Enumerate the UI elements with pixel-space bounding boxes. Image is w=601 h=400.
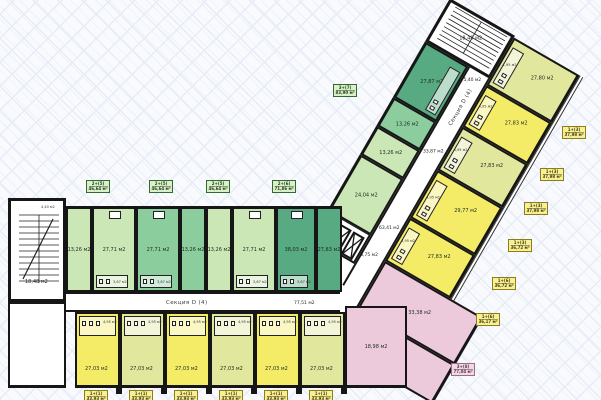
apartment-room-green[interactable]: 13,26 м2 <box>180 206 206 292</box>
porch-stub <box>251 386 257 394</box>
bath-fixture-icon <box>477 114 483 120</box>
room-area-label: 27,03 м2 <box>175 366 198 372</box>
apartment-tag-yellow[interactable]: 1+(1)33,93 м² <box>264 390 288 400</box>
corridor-area-label: 33,87 м2 <box>423 150 444 155</box>
apartment-studio[interactable]: 4,95 м227,03 м2 <box>165 312 210 388</box>
apartment-total-area-label: 37,98 м² <box>527 209 546 214</box>
bath-fixture-icon <box>89 321 93 326</box>
bath-fixture-icon <box>224 321 228 326</box>
bath-area-label: 4,95 м2 <box>283 320 297 324</box>
bath-area-label: 4,95 м2 <box>193 320 207 324</box>
apartment-tag-yellow[interactable]: 1+(3)37,98 м² <box>562 126 586 139</box>
room-area-label: 27,03 м2 <box>265 366 288 372</box>
apartment-tag-yellow[interactable]: 1+(1)33,93 м² <box>129 390 153 400</box>
bath-area-label: 4,95 м2 <box>454 148 468 152</box>
apartment-tag-green[interactable]: 3+(7)83,90 м² <box>333 84 357 97</box>
bathroom[interactable]: 3,67 м2 <box>236 275 268 288</box>
room-area-label: 27,03 м2 <box>130 366 153 372</box>
section-label: Секция D (4) <box>166 300 208 306</box>
room-area-label: 27,03 м2 <box>220 366 243 372</box>
apartment-tag-yellow[interactable]: 1+(3)36,72 м² <box>508 239 532 252</box>
bath-fixture-icon <box>239 279 243 284</box>
bath-fixture-icon <box>433 99 439 105</box>
bath-area-label: 4,95 м2 <box>426 196 440 200</box>
left-staircase[interactable]: 18,48 м2 4,40 м2 <box>8 198 66 302</box>
bath-fixture-icon <box>186 321 190 326</box>
closet-area-label: 4,40 м2 <box>41 205 55 209</box>
room-area-label: 27,71 м2 <box>243 247 266 253</box>
bath-fixture-icon <box>399 248 405 254</box>
bath-area-label: 1,95 м2 <box>503 63 517 67</box>
apartment-room-green[interactable]: 27,71 м23,67 м2 <box>232 206 276 292</box>
room-area-label: 24,04 м2 <box>354 192 377 198</box>
room-area-label: 27,83 м2 <box>318 247 341 253</box>
bathroom[interactable]: 4,95 м2 <box>124 316 161 336</box>
entry-area-label: 5,40 м2 <box>463 78 481 83</box>
room-area-label: 27,83 м2 <box>428 254 451 260</box>
bath-fixture-icon <box>143 279 147 284</box>
apartment-total-area-label: 37,98 м² <box>565 133 584 138</box>
bath-fixture-icon <box>473 120 479 126</box>
apartment-tag-green[interactable]: 2+(5)46,64 м² <box>149 180 173 193</box>
stair-treads-icon <box>17 213 61 285</box>
room-area-label: 13,26 м2 <box>68 247 91 253</box>
bath-fixture-icon <box>179 321 183 326</box>
room-area-label: 27,03 м2 <box>310 366 333 372</box>
bath-fixture-icon <box>283 279 287 284</box>
bathroom[interactable]: 3,67 м2 <box>140 275 172 288</box>
apartment-studio[interactable]: 4,95 м227,03 м2 <box>120 312 165 388</box>
bath-fixture-icon <box>172 321 176 326</box>
bath-area-label: 3,67 м2 <box>157 280 171 284</box>
apartment-tag-green[interactable]: 2+(6)71,86 м² <box>272 180 296 193</box>
room-area-label: 13,26 м2 <box>182 247 205 253</box>
bath-fixture-icon <box>314 321 318 326</box>
apartment-tag-yellow[interactable]: 1+(1)33,93 м² <box>219 390 243 400</box>
bath-area-label: 4,95 м2 <box>148 320 162 324</box>
entry-hall <box>8 302 66 388</box>
bath-fixture-icon <box>106 279 110 284</box>
apartment-total-area-label: 37,98 м² <box>543 175 562 180</box>
apartment-tag-yellow[interactable]: 1+(6)36,72 м² <box>492 277 516 290</box>
corridor-area-label: 63,41 м2 <box>379 226 400 231</box>
bath-fixture-icon <box>99 279 103 284</box>
room-area-label: 27,83 м2 <box>480 163 503 169</box>
bath-fixture-icon <box>150 279 154 284</box>
room-area-label: 27,80 м2 <box>530 76 553 82</box>
apartment-tag-yellow[interactable]: 1+(3)37,98 м² <box>524 202 548 215</box>
room-area-label: 27,03 м2 <box>85 366 108 372</box>
apartment-tag-pink[interactable]: 3+(8)77,04 м² <box>451 363 475 376</box>
bathroom[interactable]: 3,67 м2 <box>96 275 128 288</box>
apartment-room-pink[interactable]: 18,98 м2 <box>345 306 407 388</box>
bathroom[interactable]: 4,95 м2 <box>214 316 251 336</box>
apartment-total-area-label: 71,86 м² <box>275 187 294 192</box>
apartment-studio[interactable]: 4,95 м227,03 м2 <box>255 312 300 388</box>
apartment-room-green[interactable]: 27,83 м2 <box>316 206 342 292</box>
bath-area-label: 3,67 м2 <box>113 280 127 284</box>
apartment-total-area-label: 36,72 м² <box>511 246 530 251</box>
bath-area-label: 3,67 м2 <box>297 280 311 284</box>
bath-fixture-icon <box>290 279 294 284</box>
bath-fixture-icon <box>217 321 221 326</box>
hall-area-label: 8,75 м2 <box>360 253 378 258</box>
left-corridor[interactable]: Секция D (4) 77,51 м2 <box>66 292 340 312</box>
bath-fixture-icon <box>134 321 138 326</box>
bath-area-label: 4,95 м2 <box>328 320 342 324</box>
bath-fixture-icon <box>396 255 402 261</box>
apartment-room-green[interactable]: 27,71 м23,67 м2 <box>92 206 136 292</box>
apartment-total-area-label: 46,64 м² <box>89 187 108 192</box>
bath-area-label: 4,95 м2 <box>401 239 415 243</box>
porch-stub <box>341 386 347 394</box>
apartment-total-area-label: 36,72 м² <box>495 284 514 289</box>
apartment-total-area-label: 77,04 м² <box>454 370 473 375</box>
apartment-total-area-label: 46,64 м² <box>209 187 228 192</box>
closet-box <box>291 211 303 219</box>
bath-fixture-icon <box>429 105 435 111</box>
apartment-total-area-label: 46,64 м² <box>152 187 171 192</box>
apartment-tag-yellow[interactable]: 1+(1)33,93 м² <box>174 390 198 400</box>
bath-fixture-icon <box>96 321 100 326</box>
apartment-room-green[interactable]: 38,03 м23,67 м2 <box>276 206 316 292</box>
bath-fixture-icon <box>421 211 427 217</box>
bath-fixture-icon <box>231 321 235 326</box>
apartment-room-green[interactable]: 27,71 м23,67 м2 <box>136 206 180 292</box>
room-area-label: 13,26 м2 <box>395 121 418 127</box>
porch-stub <box>161 386 167 394</box>
bath-fixture-icon <box>424 205 430 211</box>
bath-fixture-icon <box>269 321 273 326</box>
bath-fixture-icon <box>262 321 266 326</box>
bath-area-label: 4,95 м2 <box>238 320 252 324</box>
bath-fixture-icon <box>452 158 458 164</box>
bathroom[interactable]: 4,95 м2 <box>169 316 206 336</box>
closet-box <box>109 211 121 219</box>
bath-fixture-icon <box>127 321 131 326</box>
room-area-label: 27,71 м2 <box>103 247 126 253</box>
room-area-label: 13,26 м2 <box>208 247 231 253</box>
bathroom[interactable]: 4,95 м2 <box>79 316 116 336</box>
bathroom[interactable]: 4,95 м2 <box>259 316 296 336</box>
room-area-label: 38,03 м2 <box>285 247 308 253</box>
room-area-label: 33,38 м2 <box>408 310 431 316</box>
room-area-label: 27,83 м2 <box>505 121 528 127</box>
apartment-tag-green[interactable]: 2+(5)46,64 м² <box>206 180 230 193</box>
bath-fixture-icon <box>82 321 86 326</box>
closet-box <box>153 211 165 219</box>
apartment-tag-yellow[interactable]: 1+(3)37,98 м² <box>540 168 564 181</box>
bathroom[interactable]: 4,95 м2 <box>304 316 341 336</box>
apartment-tag-yellow[interactable]: 1+(1)33,93 м² <box>309 390 333 400</box>
bathroom[interactable]: 3,67 м2 <box>280 275 308 288</box>
apartment-studio[interactable]: 4,95 м227,03 м2 <box>75 312 120 388</box>
floorplan-canvas: 63,41 м2 33,87 м2 Секция D (4) 8,75 м2 1… <box>0 0 601 400</box>
apartment-tag-yellow[interactable]: 1+(6)36,17 м² <box>476 313 500 326</box>
bath-fixture-icon <box>501 73 507 79</box>
room-area-label: 27,71 м2 <box>147 247 170 253</box>
apartment-studio[interactable]: 4,95 м227,03 м2 <box>300 312 345 388</box>
bath-fixture-icon <box>497 79 503 85</box>
apartment-total-area-label: 83,90 м² <box>336 91 355 96</box>
apartment-tag-green[interactable]: 2+(5)46,64 м² <box>86 180 110 193</box>
apartment-tag-yellow[interactable]: 1+(1)33,93 м² <box>84 390 108 400</box>
apartment-total-area-label: 36,17 м² <box>479 320 498 325</box>
bath-fixture-icon <box>141 321 145 326</box>
bath-fixture-icon <box>321 321 325 326</box>
closet-box <box>249 211 261 219</box>
bath-fixture-icon <box>276 321 280 326</box>
porch-stub <box>296 386 302 394</box>
bath-area-label: 4,95 м2 <box>479 105 493 109</box>
apartment-room-green[interactable]: 13,26 м2 <box>66 206 92 292</box>
room-area-label: 13,26 м2 <box>379 150 402 156</box>
bath-area-label: 3,67 м2 <box>253 280 267 284</box>
apartment-room-green[interactable]: 13,26 м2 <box>206 206 232 292</box>
room-area-label: 18,98 м2 <box>365 344 388 350</box>
corridor-area-label: 77,51 м2 <box>294 301 315 306</box>
porch-stub <box>116 386 122 394</box>
apartment-studio[interactable]: 4,95 м227,03 м2 <box>210 312 255 388</box>
porch-stub <box>206 386 212 394</box>
bath-fixture-icon <box>307 321 311 326</box>
bath-fixture-icon <box>448 164 454 170</box>
bath-area-label: 4,95 м2 <box>103 320 117 324</box>
room-area-label: 29,77 м2 <box>454 209 477 215</box>
bath-fixture-icon <box>246 279 250 284</box>
